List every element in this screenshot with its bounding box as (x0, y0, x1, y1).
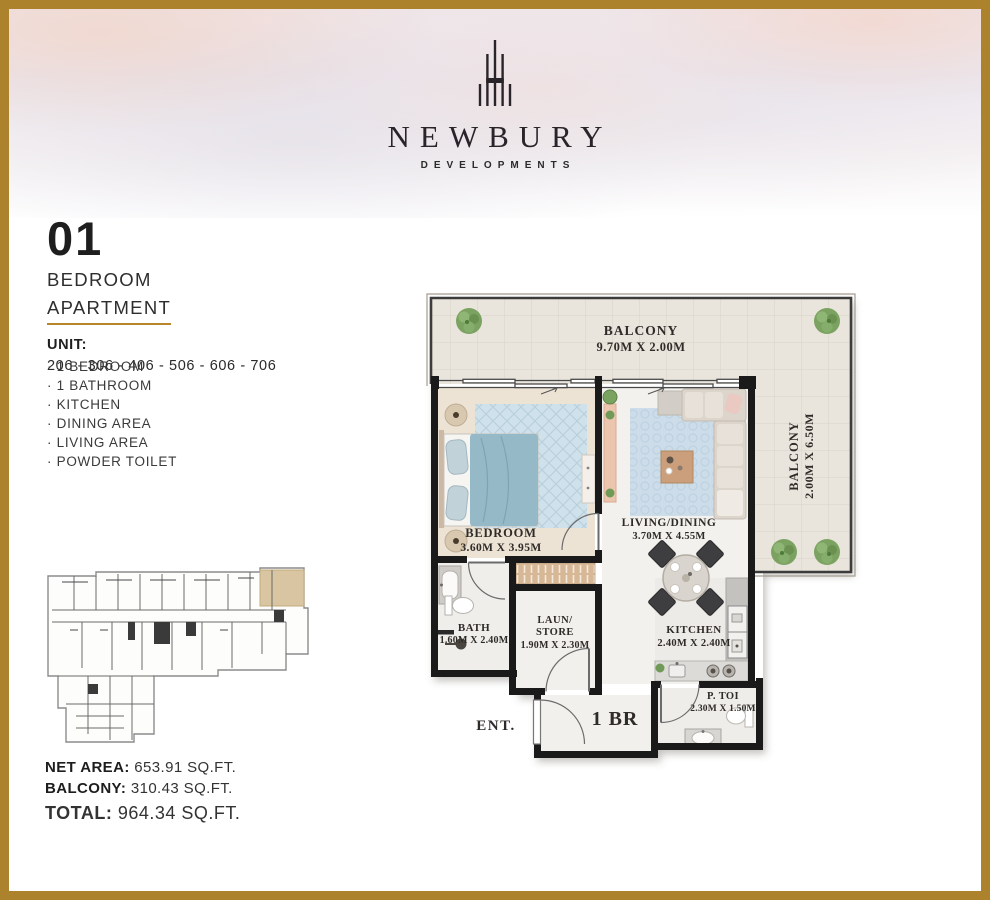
kitchen-dims: 2.40M X 2.40M (657, 638, 730, 649)
wardrobe (516, 563, 595, 584)
unit-label: UNIT: (47, 337, 276, 353)
hall-label: 1 BR (592, 708, 639, 730)
brochure-page: NEWBURY DEVELOPMENTS 01 BEDROOM APARTMEN… (0, 0, 990, 900)
brand-name: NEWBURY (0, 119, 990, 155)
area-summary: NET AREA: 653.91 SQ.FT. BALCONY: 310.43 … (45, 757, 240, 827)
entrance-label: ENT. (476, 718, 515, 734)
total-area-row: TOTAL: 964.34 SQ.FT. (45, 800, 240, 827)
highlighted-unit (260, 570, 304, 606)
feature-item: · KITCHEN (47, 395, 177, 414)
feature-item: · DINING AREA (47, 414, 177, 433)
brand-tagline: DEVELOPMENTS (0, 160, 990, 171)
coffee-table (661, 451, 693, 483)
toilet (445, 596, 452, 615)
building-key-plan (36, 558, 316, 755)
powder-toilet-dims: 2.30M X 1.50M (690, 704, 755, 714)
balcony-top-dims: 9.70M X 2.00M (596, 340, 685, 354)
living-label: LIVING/DINING (622, 517, 717, 529)
net-area-value: 653.91 SQ.FT. (134, 759, 236, 776)
feature-item: · POWDER TOILET (47, 452, 177, 471)
laundry-label-1: LAUN/ (537, 615, 573, 626)
feature-item: · 1 BEDROOM (47, 357, 177, 376)
side-table (658, 391, 682, 415)
unit-count: 01 (47, 214, 276, 263)
floor-plan: BALCONY 9.70M X 2.00M BALCONY 2.00M X 6.… (423, 288, 863, 779)
dresser (582, 455, 595, 503)
laundry-label-2: STORE (536, 627, 574, 638)
pillow (445, 485, 468, 521)
title-apartment: APARTMENT (47, 297, 171, 325)
balcony-area-row: BALCONY: 310.43 SQ.FT. (45, 778, 240, 799)
pillow (445, 439, 468, 475)
brand-logo: NEWBURY DEVELOPMENTS (0, 38, 990, 171)
balcony-area-value: 310.43 SQ.FT. (131, 780, 233, 797)
total-area-label: TOTAL: (45, 803, 112, 823)
kitchen-sink (669, 665, 685, 677)
bedroom-label: BEDROOM (465, 526, 537, 540)
bath-dims: 1.60M X 2.40M (440, 635, 509, 646)
powder-toilet-label: P. TOI (707, 691, 739, 702)
bath-label: BATH (458, 622, 490, 634)
entrance-door-leaf (534, 700, 541, 744)
balcony-top-label: BALCONY (604, 323, 679, 338)
balcony-area-label: BALCONY: (45, 780, 126, 797)
kitchen-label: KITCHEN (666, 624, 721, 636)
net-area-label: NET AREA: (45, 759, 130, 776)
feature-list: · 1 BEDROOM · 1 BATHROOM · KITCHEN · DIN… (47, 357, 177, 471)
total-area-value: 964.34 SQ.FT. (118, 803, 241, 823)
feature-item: · LIVING AREA (47, 433, 177, 452)
plant-icon (656, 664, 665, 673)
net-area-row: NET AREA: 653.91 SQ.FT. (45, 757, 240, 778)
title-block: 01 BEDROOM APARTMENT UNIT: 206 - 306 - 4… (47, 214, 276, 374)
balcony-right-dims: 2.00M X 6.50M (802, 413, 816, 499)
shower-partition (438, 630, 454, 635)
living-dims: 3.70M X 4.55M (632, 531, 705, 542)
bedroom-dims: 3.60M X 3.95M (460, 542, 541, 554)
laundry-dims: 1.90M X 2.30M (521, 640, 590, 651)
title-bedroom: BEDROOM (47, 269, 276, 291)
building-icon (457, 38, 533, 108)
feature-item: · 1 BATHROOM (47, 376, 177, 395)
balcony-right-label: BALCONY (787, 421, 801, 491)
plant-icon (603, 390, 617, 404)
bed-headboard (439, 430, 444, 528)
